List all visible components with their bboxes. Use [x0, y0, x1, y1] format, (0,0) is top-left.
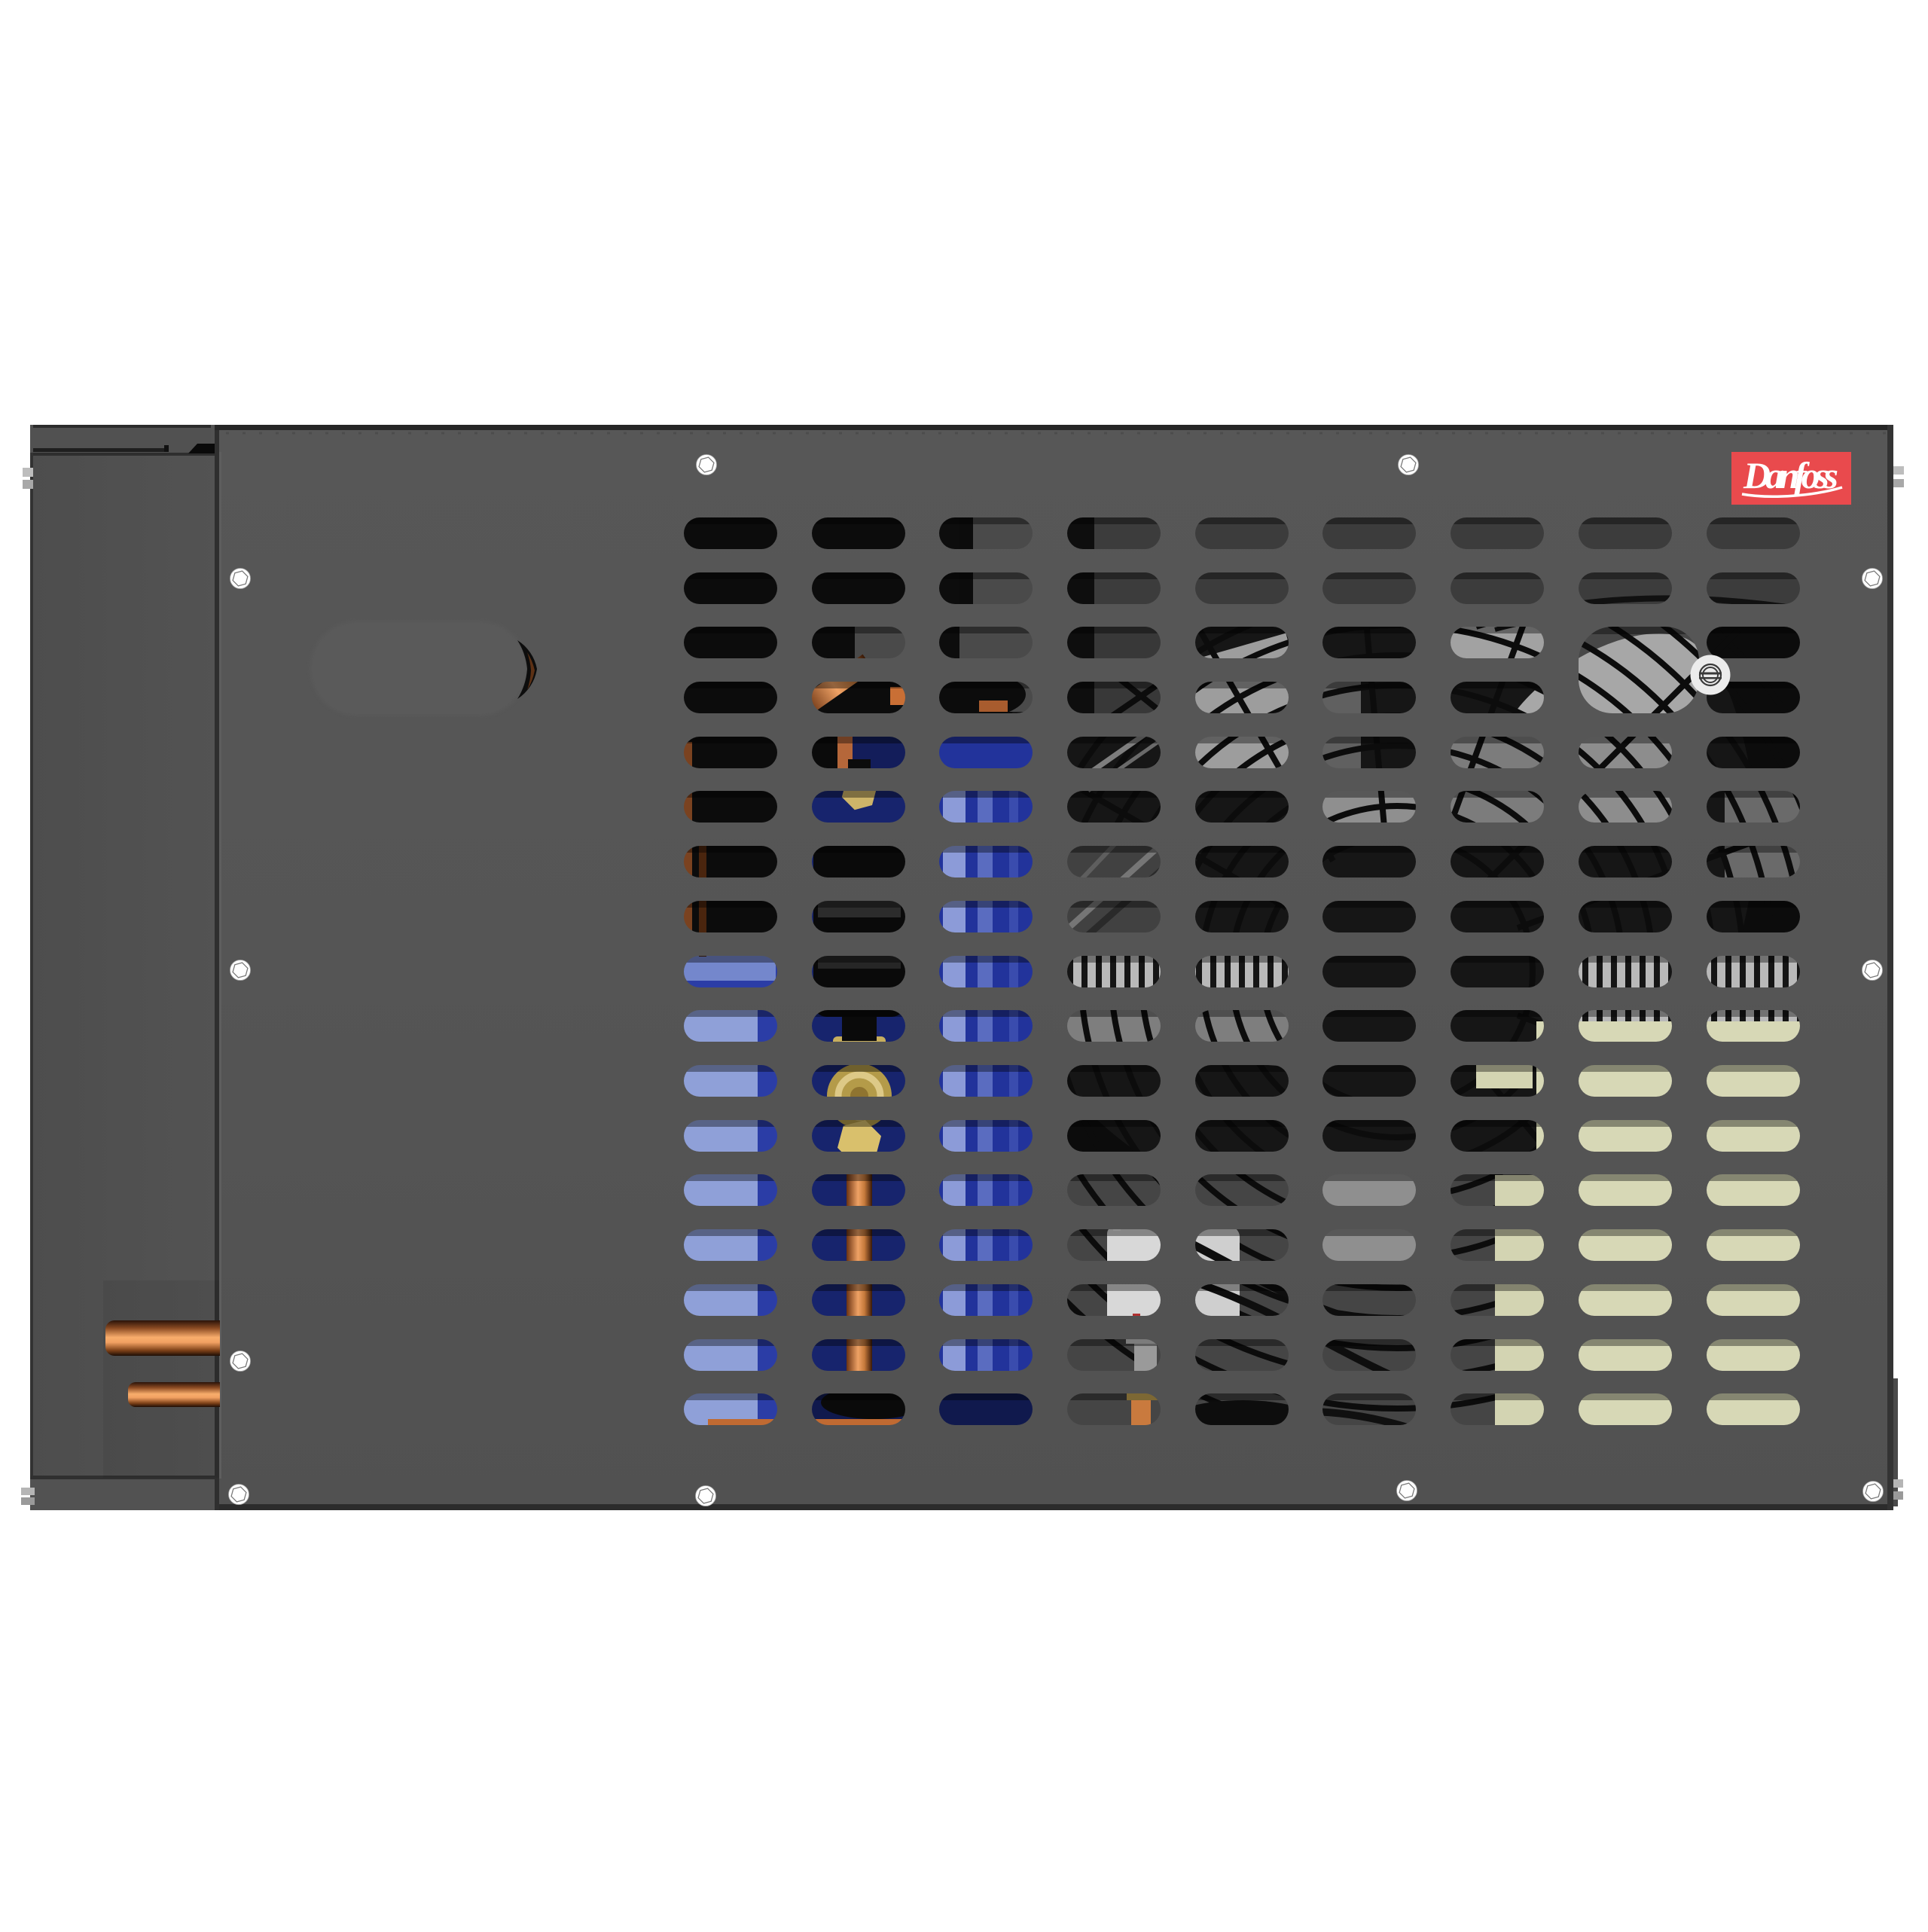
svg-text:Danfoss: Danfoss [1743, 454, 1838, 496]
